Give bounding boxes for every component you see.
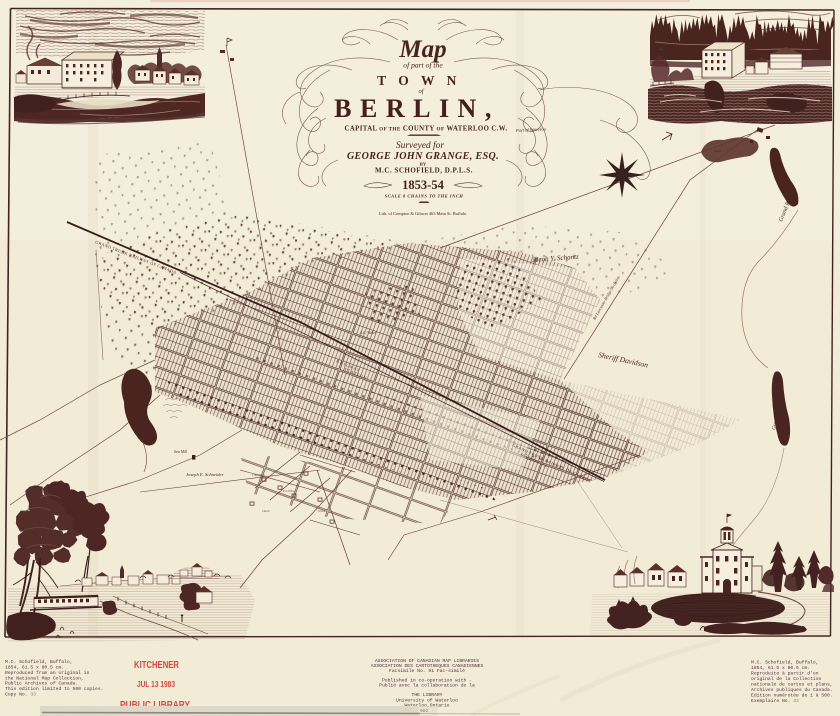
svg-text:Publié avec la collaboration d: Publié avec la collaboration de la [379, 683, 475, 689]
svg-text:SCALE 8 CHAINS TO THE INCH: SCALE 8 CHAINS TO THE INCH [385, 194, 464, 199]
svg-text:Lith. of Compton & Gibson 463: Lith. of Compton & Gibson 463 Main St. B… [379, 211, 467, 216]
svg-text:CAPITAL OF THE COUNTY OF WATER: CAPITAL OF THE COUNTY OF WATERLOO C.W. [345, 126, 508, 133]
svg-text:Exemplaire No. 33: Exemplaire No. 33 [751, 698, 799, 704]
svg-text:Court House: Court House [252, 474, 266, 477]
svg-text:A.C. Weber: A.C. Weber [359, 331, 377, 335]
svg-text:JUL 13 1983: JUL 13 1983 [137, 680, 175, 689]
svg-text:1854, 61.5 x 80.5 cm.: 1854, 61.5 x 80.5 cm. [5, 665, 64, 671]
svg-text:THE LIBRARY: THE LIBRARY [412, 692, 443, 698]
svg-text:Public Archives of Canada.: Public Archives of Canada. [5, 681, 78, 687]
svg-text:KITCHENER: KITCHENER [134, 659, 179, 671]
svg-text:Surveyed for: Surveyed for [396, 140, 445, 151]
svg-text:Pond: Pond [713, 149, 721, 153]
svg-text:1853-54: 1853-54 [402, 178, 444, 192]
svg-text:T O W N: T O W N [377, 73, 461, 88]
svg-text:Facsimile No. 91 Fac-similé: Facsimile No. 91 Fac-similé [389, 668, 465, 674]
svg-text:GEORGE JOHN GRANGE, ESQ.: GEORGE JOHN GRANGE, ESQ. [347, 151, 499, 162]
svg-text:School: School [318, 510, 325, 513]
svg-text:Post Office: Post Office [283, 490, 296, 493]
svg-text:Archives publiques du Canada.: Archives publiques du Canada. [751, 687, 833, 693]
svg-text:original de la Collection: original de la Collection [751, 676, 822, 682]
svg-text:M.C. Schofield, Buffalo,: M.C. Schofield, Buffalo, [5, 659, 73, 665]
svg-text:Copy No. 33: Copy No. 33 [5, 691, 36, 697]
svg-text:Saw Mill: Saw Mill [174, 450, 187, 454]
svg-text:M.C. SCHOFIELD, D.P.L.S.: M.C. SCHOFIELD, D.P.L.S. [375, 167, 473, 175]
svg-text:nationale de cartes et plans,: nationale de cartes et plans, [751, 682, 833, 688]
svg-text:BERLIN,: BERLIN, [334, 94, 500, 123]
svg-text:of part of the: of part of the [403, 61, 443, 70]
svg-text:Map: Map [398, 36, 446, 63]
svg-text:Reproduite à partir d'un: Reproduite à partir d'un [751, 671, 819, 677]
svg-text:1854, 61.5 x 80.5 cm.: 1854, 61.5 x 80.5 cm. [751, 665, 810, 671]
svg-text:the National Map Collection,: the National Map Collection, [5, 675, 84, 681]
svg-text:Joseph E. Schneider: Joseph E. Schneider [186, 472, 224, 477]
svg-text:Part of Bridgeport: Part of Bridgeport [727, 118, 759, 123]
svg-text:This edition limited to 500 co: This edition limited to 500 copies. [5, 686, 103, 692]
svg-text:Edition numérotée de 1 à 500.: Edition numérotée de 1 à 500. [751, 693, 833, 699]
svg-text:M.C. Schofield, Buffalo,: M.C. Schofield, Buffalo, [751, 660, 819, 666]
svg-text:Church: Church [262, 510, 270, 513]
svg-text:Reproduced from an original in: Reproduced from an original in [5, 670, 90, 676]
